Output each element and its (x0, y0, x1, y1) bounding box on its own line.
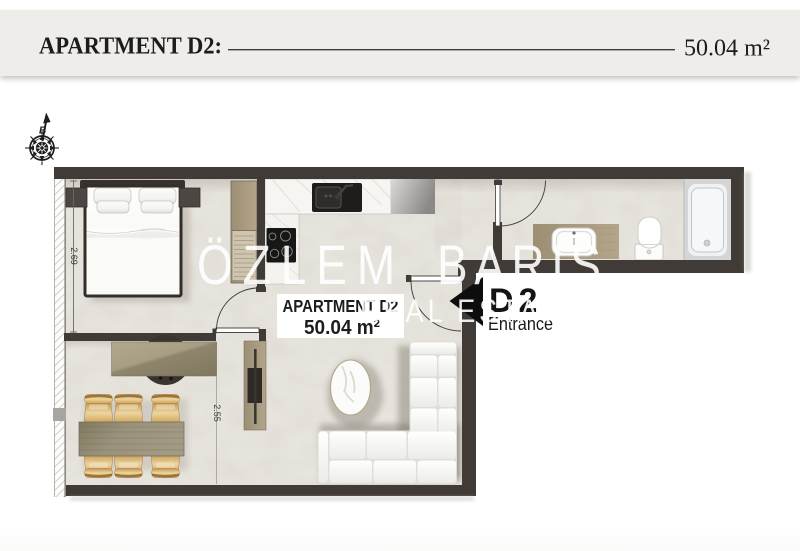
svg-text:BARIS: BARIS (437, 234, 608, 296)
svg-text:REAL ESTATE: REAL ESTATE (360, 294, 582, 330)
svg-text:2.69: 2.69 (69, 247, 79, 265)
svg-text:ÖZLEM: ÖZLEM (197, 234, 405, 296)
svg-text:2.55: 2.55 (212, 404, 222, 422)
svg-text:B: B (39, 126, 46, 137)
